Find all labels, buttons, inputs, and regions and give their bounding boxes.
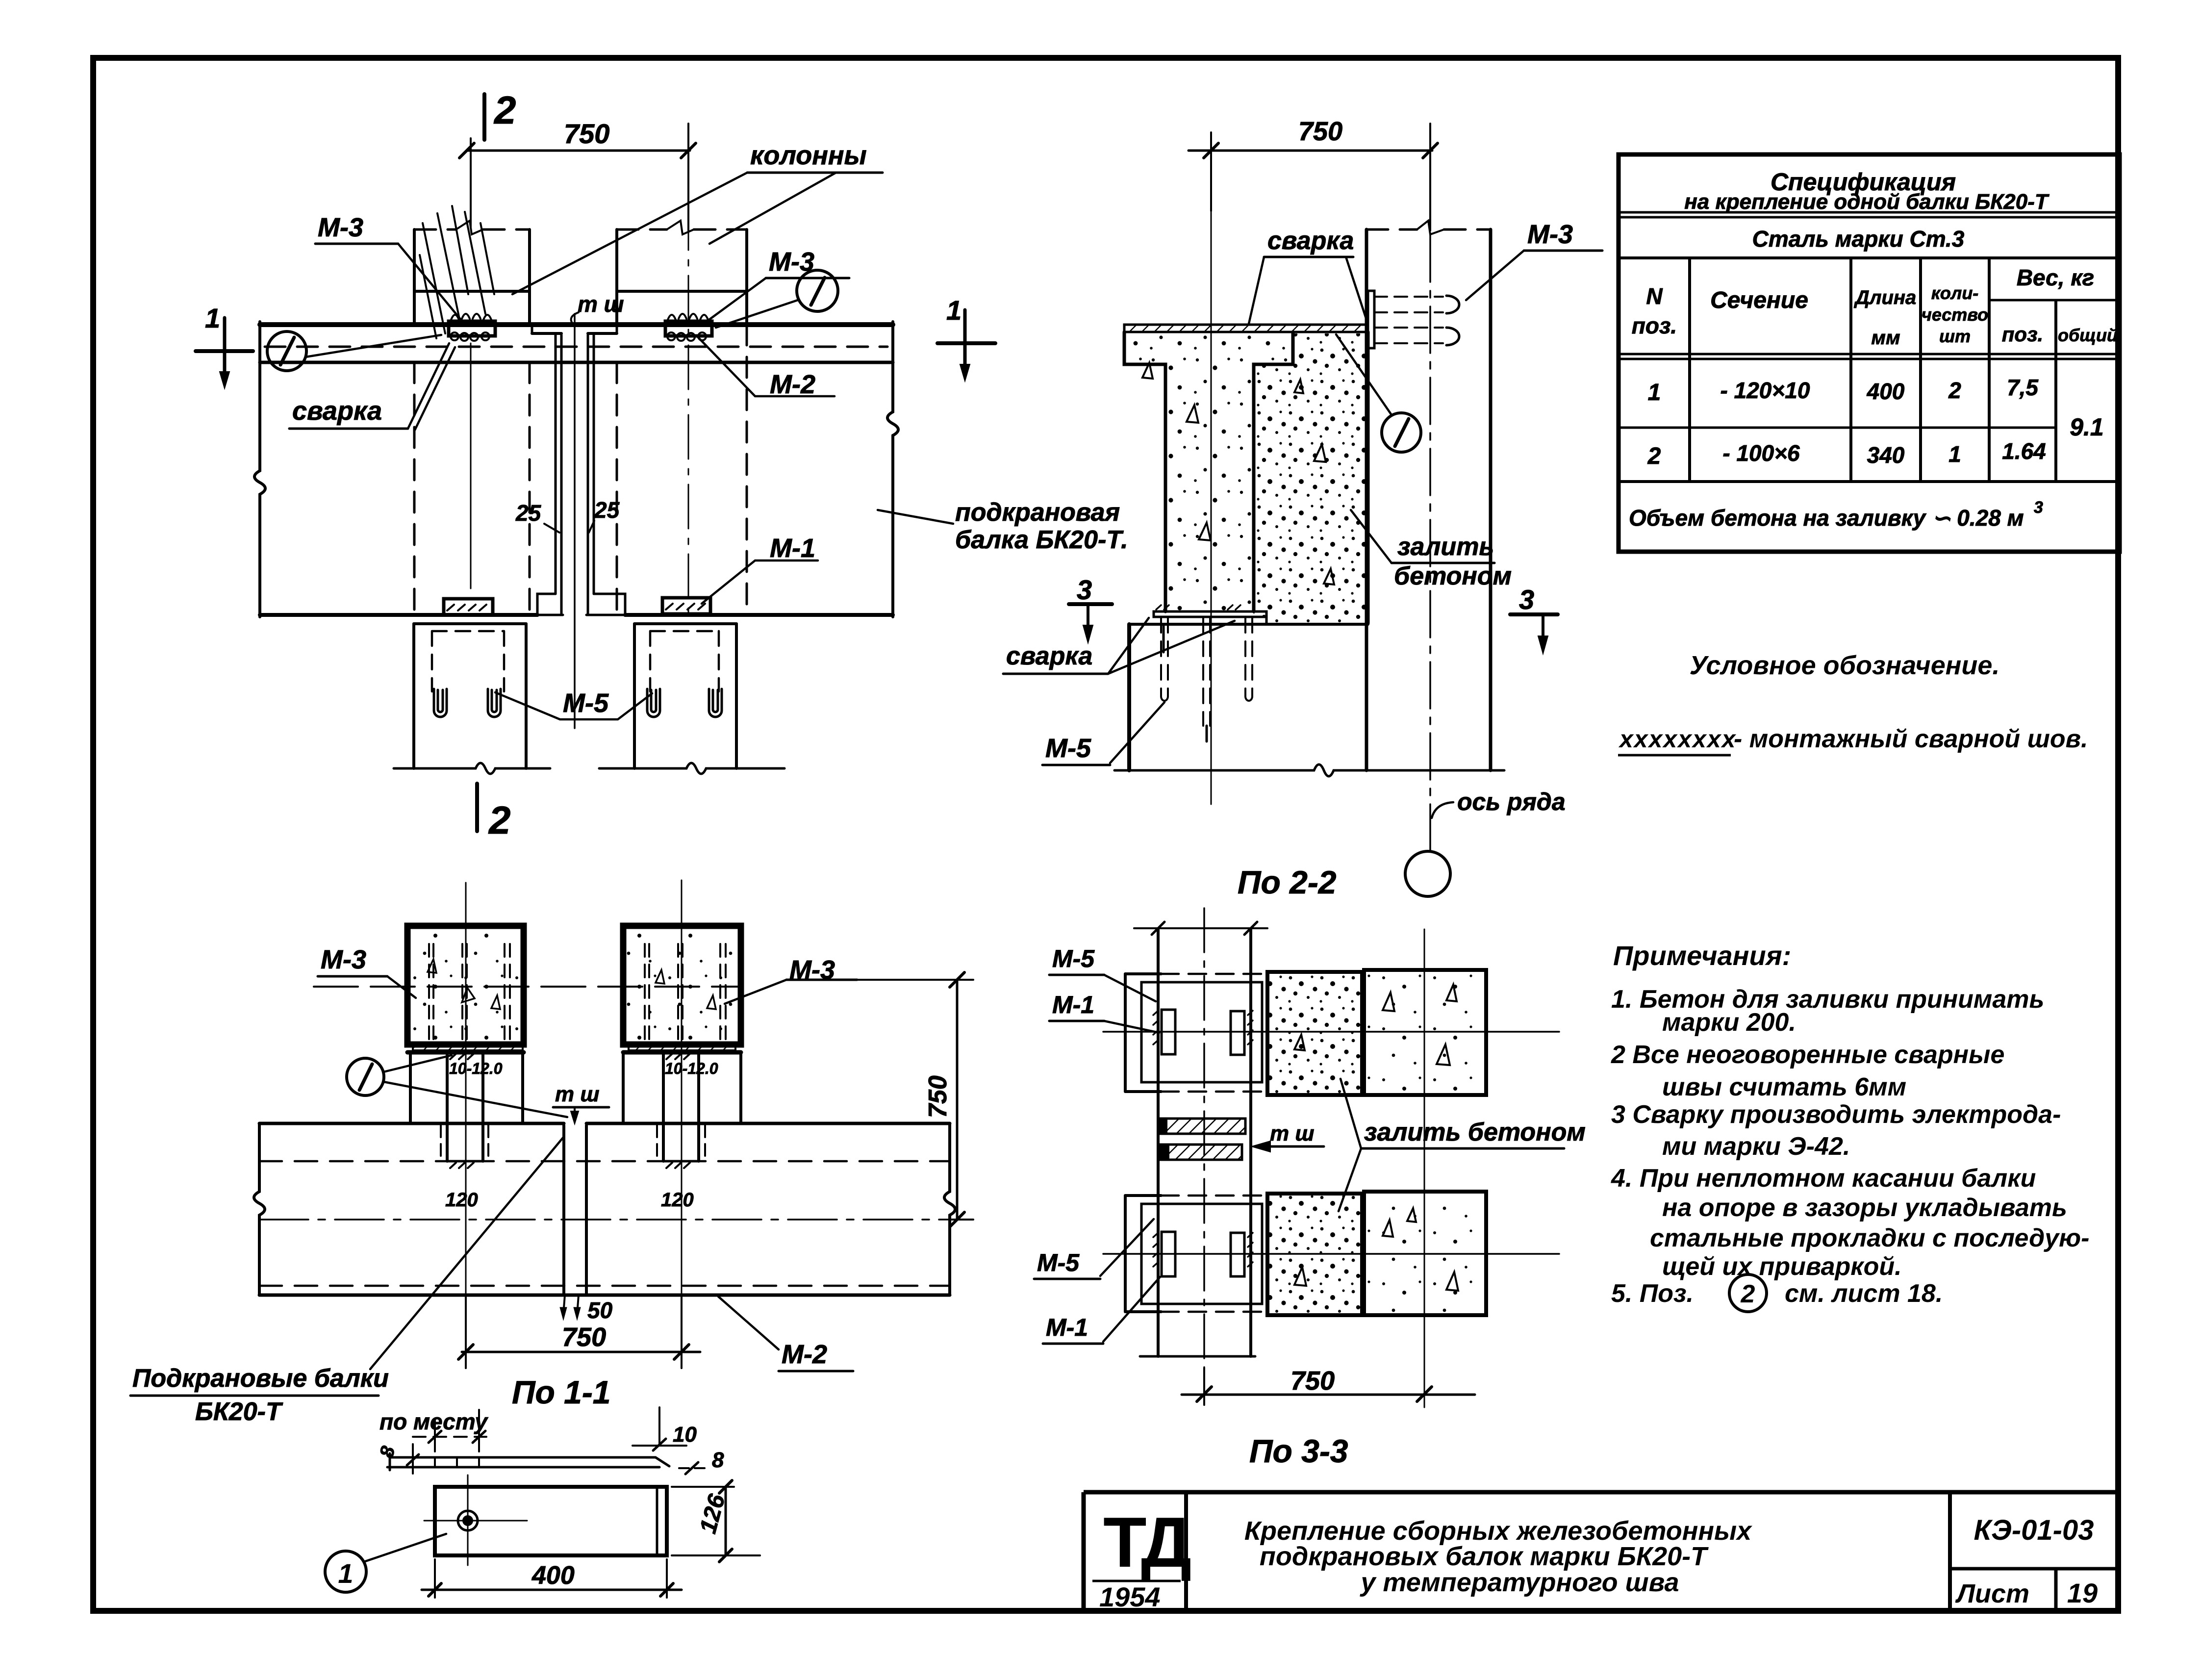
svg-text:1: 1 [1648, 380, 1661, 406]
svg-text:М-3: М-3 [1527, 220, 1573, 249]
svg-text:50: 50 [587, 1298, 613, 1323]
svg-text:Примечания:: Примечания: [1613, 940, 1791, 971]
svg-text:340: 340 [1867, 442, 1905, 468]
svg-text:М-3: М-3 [318, 213, 363, 242]
svg-text:3: 3 [1077, 574, 1092, 605]
svg-text:Сталь марки Ст.3: Сталь марки Ст.3 [1752, 226, 1965, 252]
svg-text:1: 1 [205, 303, 220, 333]
svg-text:750: 750 [1298, 117, 1342, 146]
svg-text:Объем бетона на заливку ∽: Объем бетона на заливку ∽ 0.28 м [1629, 505, 2024, 531]
svg-text:сварка: сварка [1006, 642, 1092, 670]
svg-text:у температурного шва: у температурного шва [1359, 1568, 1679, 1597]
svg-text:1954: 1954 [1099, 1581, 1161, 1612]
svg-text:По 2-2: По 2-2 [1238, 864, 1337, 900]
svg-text:Крепление сборных железобето: Крепление сборных железобетонных [1244, 1516, 1752, 1546]
svg-text:БК20-Т: БК20-Т [195, 1398, 283, 1426]
svg-text:щей их приваркой.: щей их приваркой. [1662, 1252, 1902, 1281]
svg-text:2: 2 [1741, 1280, 1755, 1308]
svg-text:М-1: М-1 [1052, 991, 1094, 1018]
svg-text:мм: мм [1871, 327, 1900, 349]
svg-text:2 Все неоговоренные сварные: 2 Все неоговоренные сварные [1611, 1041, 2004, 1069]
svg-text:2: 2 [1647, 443, 1661, 469]
svg-text:поз.: поз. [2002, 323, 2043, 346]
svg-text:шт: шт [1939, 326, 1971, 346]
svg-text:19: 19 [2067, 1578, 2098, 1608]
svg-text:см. лист 18.: см. лист 18. [1785, 1279, 1943, 1308]
svg-text:По 1-1: По 1-1 [512, 1374, 611, 1410]
svg-text:N: N [1646, 283, 1663, 309]
svg-text:Лист: Лист [1955, 1579, 2029, 1608]
svg-text:М-1: М-1 [1046, 1314, 1088, 1341]
svg-text:750: 750 [562, 1323, 606, 1352]
svg-text:Длина: Длина [1854, 287, 1917, 308]
svg-text:Подкрановые балки: Подкрановые балки [132, 1364, 389, 1393]
svg-text:подкрановая: подкрановая [955, 498, 1120, 527]
svg-text:400: 400 [1867, 379, 1905, 404]
svg-text:2: 2 [1948, 378, 1961, 403]
svg-text:М-5: М-5 [1052, 945, 1095, 972]
svg-text:Сечение: Сечение [1710, 287, 1808, 313]
svg-text:2: 2 [493, 88, 516, 132]
svg-text:М-5: М-5 [1045, 734, 1091, 763]
svg-text:т ш: т ш [578, 291, 624, 317]
svg-text:стальные прокладки с последу: стальные прокладки с последую- [1650, 1224, 2089, 1252]
svg-text:xxxxxxxx: xxxxxxxx [1618, 725, 1737, 753]
svg-text:10-12.0: 10-12.0 [665, 1060, 718, 1077]
svg-text:бетоном: бетоном [1394, 562, 1512, 590]
svg-text:швы считать 6мм: швы считать 6мм [1662, 1073, 1906, 1101]
svg-text:залить бетоном: залить бетоном [1364, 1118, 1586, 1146]
svg-text:750: 750 [1290, 1366, 1335, 1396]
svg-text:колонны: колонны [750, 141, 867, 170]
svg-text:коли-: коли- [1931, 283, 1979, 303]
svg-text:Вес, кг: Вес, кг [2017, 265, 2094, 290]
svg-text:т ш: т ш [555, 1082, 599, 1106]
svg-text:марки 200.: марки 200. [1662, 1008, 1796, 1037]
svg-text:Условное обозначение.: Условное обозначение. [1690, 651, 2000, 680]
svg-text:9.1: 9.1 [2070, 413, 2104, 441]
svg-text:- 100×6: - 100×6 [1722, 440, 1800, 466]
svg-text:ТД: ТД [1103, 1502, 1190, 1582]
svg-text:балка БК20-Т.: балка БК20-Т. [955, 526, 1128, 554]
svg-text:КЭ-01-03: КЭ-01-03 [1974, 1514, 2094, 1546]
svg-text:сварка: сварка [292, 396, 382, 426]
svg-text:1: 1 [338, 1558, 353, 1589]
svg-text:25: 25 [594, 497, 620, 523]
svg-text:2: 2 [488, 798, 511, 842]
svg-text:4. При неплотном касании б: 4. При неплотном касании балки [1611, 1164, 2036, 1193]
svg-text:8: 8 [712, 1448, 724, 1472]
svg-text:7,5: 7,5 [2007, 375, 2039, 400]
svg-text:М-2: М-2 [770, 370, 815, 399]
svg-text:1: 1 [1948, 441, 1961, 467]
svg-text:3: 3 [1519, 584, 1534, 615]
svg-text:М-5: М-5 [563, 688, 609, 718]
svg-text:общий: общий [2058, 325, 2118, 345]
svg-text:25: 25 [515, 500, 542, 526]
svg-text:3: 3 [2034, 498, 2043, 517]
svg-text:- 120×10: - 120×10 [1720, 378, 1810, 403]
svg-text:- монтажный сварной шов.: - монтажный сварной шов. [1734, 725, 2088, 753]
svg-text:400: 400 [531, 1561, 575, 1590]
svg-text:3 Сварку производить элект: 3 Сварку производить электрода- [1611, 1100, 2061, 1129]
svg-text:10: 10 [673, 1423, 697, 1447]
svg-text:залить: залить [1397, 533, 1494, 561]
svg-text:М-2: М-2 [782, 1340, 827, 1369]
svg-text:М-3: М-3 [321, 945, 366, 974]
svg-text:По 3-3: По 3-3 [1249, 1433, 1348, 1469]
svg-text:на опоре в зазоры укладыват: на опоре в зазоры укладывать [1662, 1194, 2067, 1222]
svg-text:1.64: 1.64 [2002, 438, 2046, 464]
svg-text:120: 120 [445, 1189, 478, 1211]
svg-text:5. Поз.: 5. Поз. [1611, 1279, 1694, 1308]
svg-text:750: 750 [924, 1075, 952, 1118]
svg-text:10-12.0: 10-12.0 [449, 1060, 503, 1077]
svg-text:сварка: сварка [1267, 227, 1354, 255]
svg-text:ми марки Э-42.: ми марки Э-42. [1662, 1132, 1850, 1161]
svg-text:М-3: М-3 [769, 247, 814, 277]
svg-text:ось ряда: ось ряда [1457, 788, 1566, 815]
svg-text:на крепление одной балки БК: на крепление одной балки БК20-Т [1684, 190, 2049, 214]
svg-text:поз.: поз. [1632, 313, 1677, 338]
svg-text:М-5: М-5 [1037, 1249, 1080, 1276]
svg-text:подкрановых балок марки БК20: подкрановых балок марки БК20-Т [1260, 1542, 1709, 1571]
svg-text:1: 1 [946, 295, 961, 326]
svg-text:т ш: т ш [1270, 1121, 1314, 1145]
svg-text:120: 120 [661, 1189, 694, 1211]
svg-text:750: 750 [564, 118, 609, 149]
svg-text:чество: чество [1922, 305, 1988, 325]
svg-text:М-1: М-1 [770, 534, 815, 563]
